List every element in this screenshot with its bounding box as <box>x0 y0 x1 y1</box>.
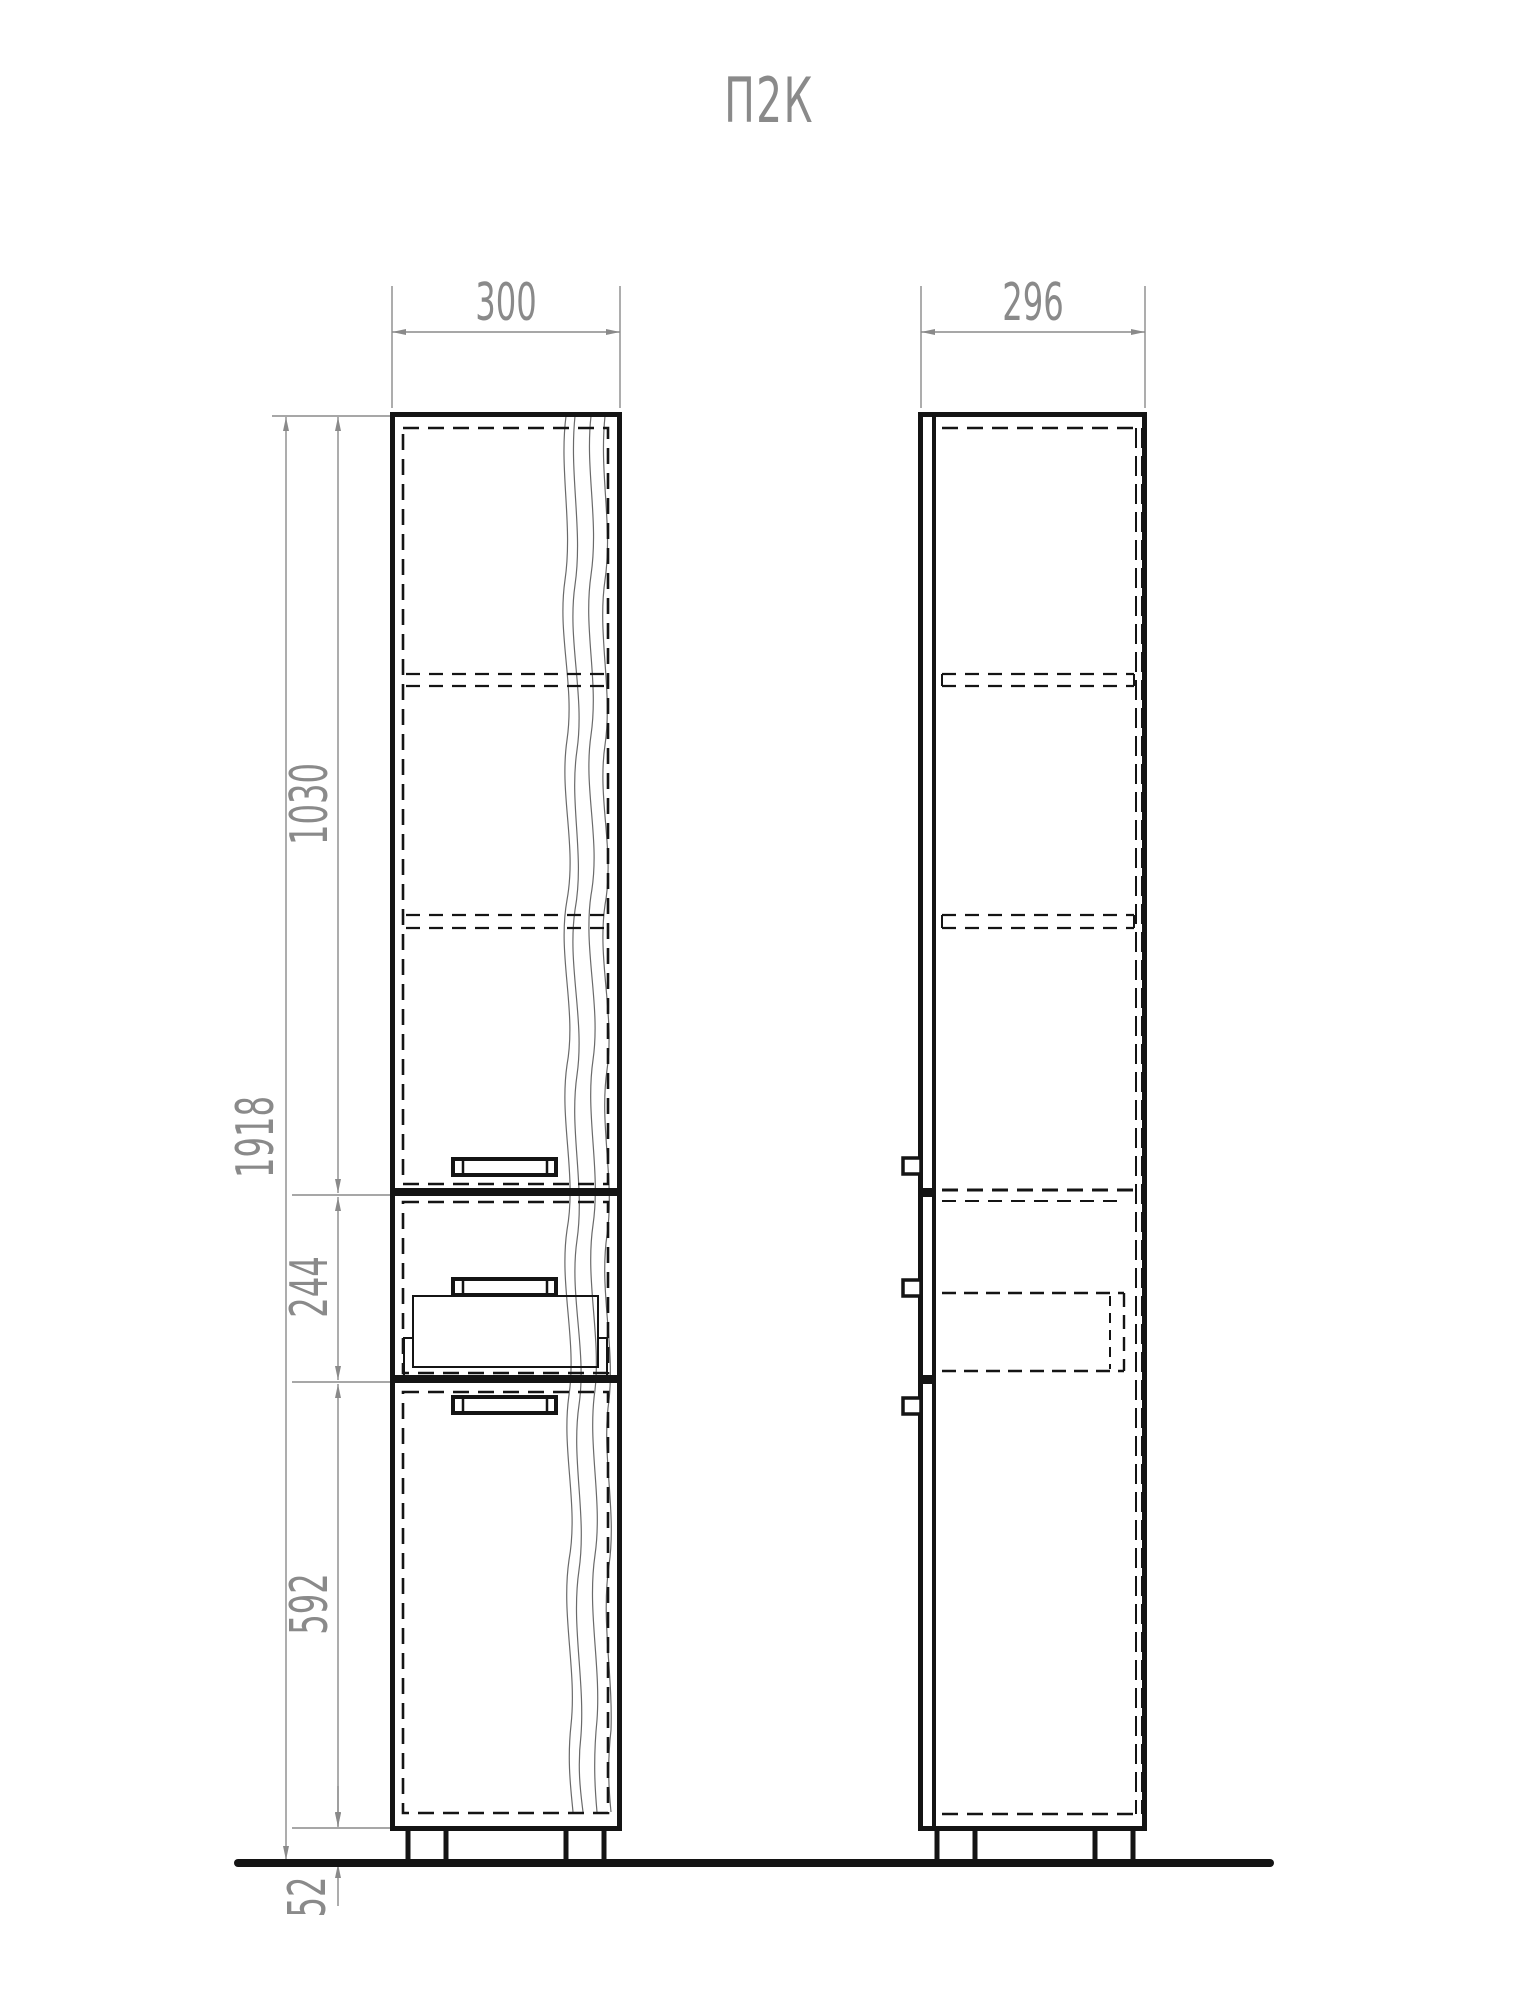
side-door-gap-bottom <box>918 1375 936 1384</box>
side-drawer-box <box>942 1293 1124 1371</box>
dim-label-drawer-section: 244 <box>284 1256 336 1318</box>
side-door-gap-top <box>918 1188 936 1197</box>
bottom-door-handle <box>453 1397 556 1413</box>
technical-drawing-page: П2К 300 296 1918 1030 244 592 52 <box>0 0 1538 2000</box>
side-handle-top <box>903 1158 921 1174</box>
drawer-handle <box>453 1279 556 1295</box>
front-view <box>392 415 620 1863</box>
dim-label-total-height: 1918 <box>230 1096 282 1178</box>
dim-label-upper-section: 1030 <box>284 763 336 845</box>
front-handles <box>453 1159 556 1413</box>
front-shelf-lines <box>406 674 607 928</box>
side-shelf-lines <box>942 674 1134 928</box>
side-divider-lines <box>942 1190 1134 1201</box>
side-boards <box>942 428 1133 1814</box>
dim-label-front-width: 300 <box>475 277 537 329</box>
back-panel-lines <box>1136 428 1142 1814</box>
wood-grain-lines <box>563 416 611 1812</box>
page-title: П2К <box>724 70 814 132</box>
top-door-handle <box>453 1159 556 1175</box>
cabinet-drawing <box>0 0 1538 2000</box>
side-handle-bottom <box>903 1398 921 1414</box>
side-handle-middle <box>903 1280 921 1296</box>
front-dashed-panels <box>403 428 608 1813</box>
side-outline <box>921 415 1145 1829</box>
front-legs <box>408 1829 604 1862</box>
dim-label-side-depth: 296 <box>1002 277 1064 329</box>
front-outline <box>393 415 620 1829</box>
side-legs <box>937 1829 1133 1862</box>
dim-label-lower-section: 592 <box>284 1573 336 1635</box>
dim-label-plinth-height: 52 <box>282 1876 334 1917</box>
side-view <box>903 415 1145 1863</box>
